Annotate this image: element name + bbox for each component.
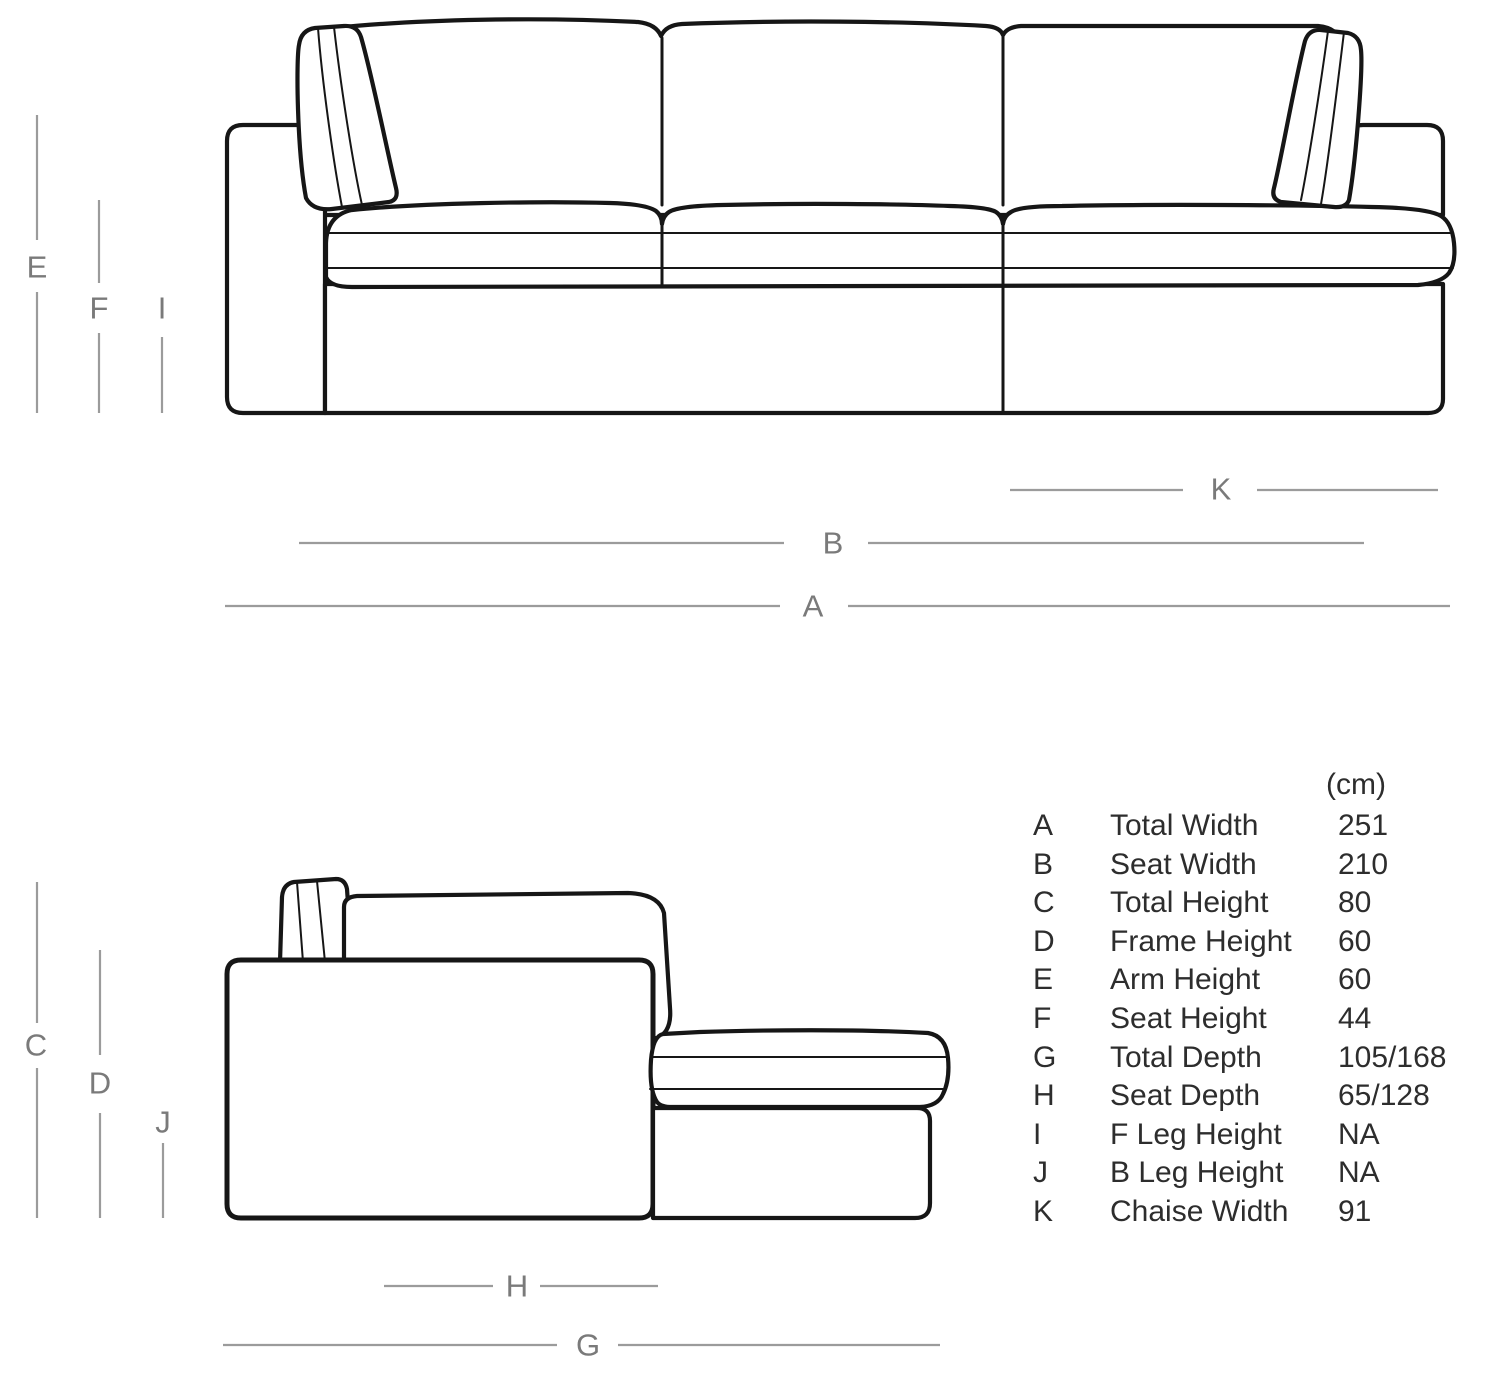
dim-label-K: K bbox=[1211, 472, 1232, 507]
dim-label-C: C bbox=[25, 1028, 47, 1063]
row-letter: K bbox=[1033, 1193, 1110, 1232]
table-row: F Seat Height 44 bbox=[1033, 1000, 1473, 1039]
row-value: 91 bbox=[1338, 1193, 1473, 1232]
dim-label-D: D bbox=[89, 1066, 111, 1101]
dim-label-E: E bbox=[27, 250, 48, 285]
dim-label-I: I bbox=[158, 291, 167, 326]
table-row: H Seat Depth 65/128 bbox=[1033, 1077, 1473, 1116]
side-chaise-cushion bbox=[651, 1030, 949, 1107]
table-row: E Arm Height 60 bbox=[1033, 961, 1473, 1000]
side-frame bbox=[227, 960, 653, 1218]
dim-label-F: F bbox=[90, 291, 109, 326]
row-value: NA bbox=[1338, 1116, 1473, 1155]
row-letter: A bbox=[1033, 807, 1110, 846]
row-name: Total Depth bbox=[1110, 1039, 1338, 1078]
row-value: 210 bbox=[1338, 846, 1473, 885]
row-letter: C bbox=[1033, 884, 1110, 923]
table-row: D Frame Height 60 bbox=[1033, 923, 1473, 962]
sofa-front-elevation bbox=[227, 19, 1454, 413]
row-name: Seat Depth bbox=[1110, 1077, 1338, 1116]
row-name: B Leg Height bbox=[1110, 1154, 1338, 1193]
row-value: 60 bbox=[1338, 923, 1473, 962]
dim-label-H: H bbox=[506, 1269, 528, 1304]
dim-label-B: B bbox=[823, 526, 844, 561]
row-value: 105/168 bbox=[1338, 1039, 1473, 1078]
row-value: NA bbox=[1338, 1154, 1473, 1193]
table-row: A Total Width 251 bbox=[1033, 807, 1473, 846]
row-name: Total Height bbox=[1110, 884, 1338, 923]
front-seat-cushions bbox=[326, 202, 1454, 287]
row-name: Seat Width bbox=[1110, 846, 1338, 885]
row-letter: G bbox=[1033, 1039, 1110, 1078]
front-base bbox=[325, 284, 1443, 413]
row-letter: E bbox=[1033, 961, 1110, 1000]
side-pillow bbox=[280, 879, 352, 962]
row-value: 251 bbox=[1338, 807, 1473, 846]
row-name: Arm Height bbox=[1110, 961, 1338, 1000]
row-letter: B bbox=[1033, 846, 1110, 885]
row-value: 44 bbox=[1338, 1000, 1473, 1039]
row-letter: F bbox=[1033, 1000, 1110, 1039]
front-back-cushions bbox=[318, 19, 1340, 215]
row-value: 80 bbox=[1338, 884, 1473, 923]
dimensions-table: A Total Width 251 B Seat Width 210 C Tot… bbox=[1033, 807, 1473, 1232]
dim-label-G: G bbox=[576, 1328, 600, 1363]
side-chaise-base bbox=[653, 1108, 930, 1218]
row-letter: H bbox=[1033, 1077, 1110, 1116]
table-row: B Seat Width 210 bbox=[1033, 846, 1473, 885]
row-name: F Leg Height bbox=[1110, 1116, 1338, 1155]
sofa-dimensions-diagram: E F I K B A C D J H G (cm) A bbox=[0, 0, 1489, 1382]
row-letter: J bbox=[1033, 1154, 1110, 1193]
table-row: K Chaise Width 91 bbox=[1033, 1193, 1473, 1232]
row-value: 65/128 bbox=[1338, 1077, 1473, 1116]
row-letter: I bbox=[1033, 1116, 1110, 1155]
table-unit-label: (cm) bbox=[1326, 766, 1386, 804]
dim-label-A: A bbox=[803, 589, 824, 624]
front-right-arm bbox=[1347, 125, 1443, 215]
row-letter: D bbox=[1033, 923, 1110, 962]
row-value: 60 bbox=[1338, 961, 1473, 1000]
table-row: C Total Height 80 bbox=[1033, 884, 1473, 923]
row-name: Frame Height bbox=[1110, 923, 1338, 962]
row-name: Total Width bbox=[1110, 807, 1338, 846]
row-name: Seat Height bbox=[1110, 1000, 1338, 1039]
sofa-side-elevation bbox=[227, 879, 948, 1218]
table-row: J B Leg Height NA bbox=[1033, 1154, 1473, 1193]
table-row: G Total Depth 105/168 bbox=[1033, 1039, 1473, 1078]
table-row: I F Leg Height NA bbox=[1033, 1116, 1473, 1155]
dim-label-J: J bbox=[155, 1105, 171, 1140]
row-name: Chaise Width bbox=[1110, 1193, 1338, 1232]
